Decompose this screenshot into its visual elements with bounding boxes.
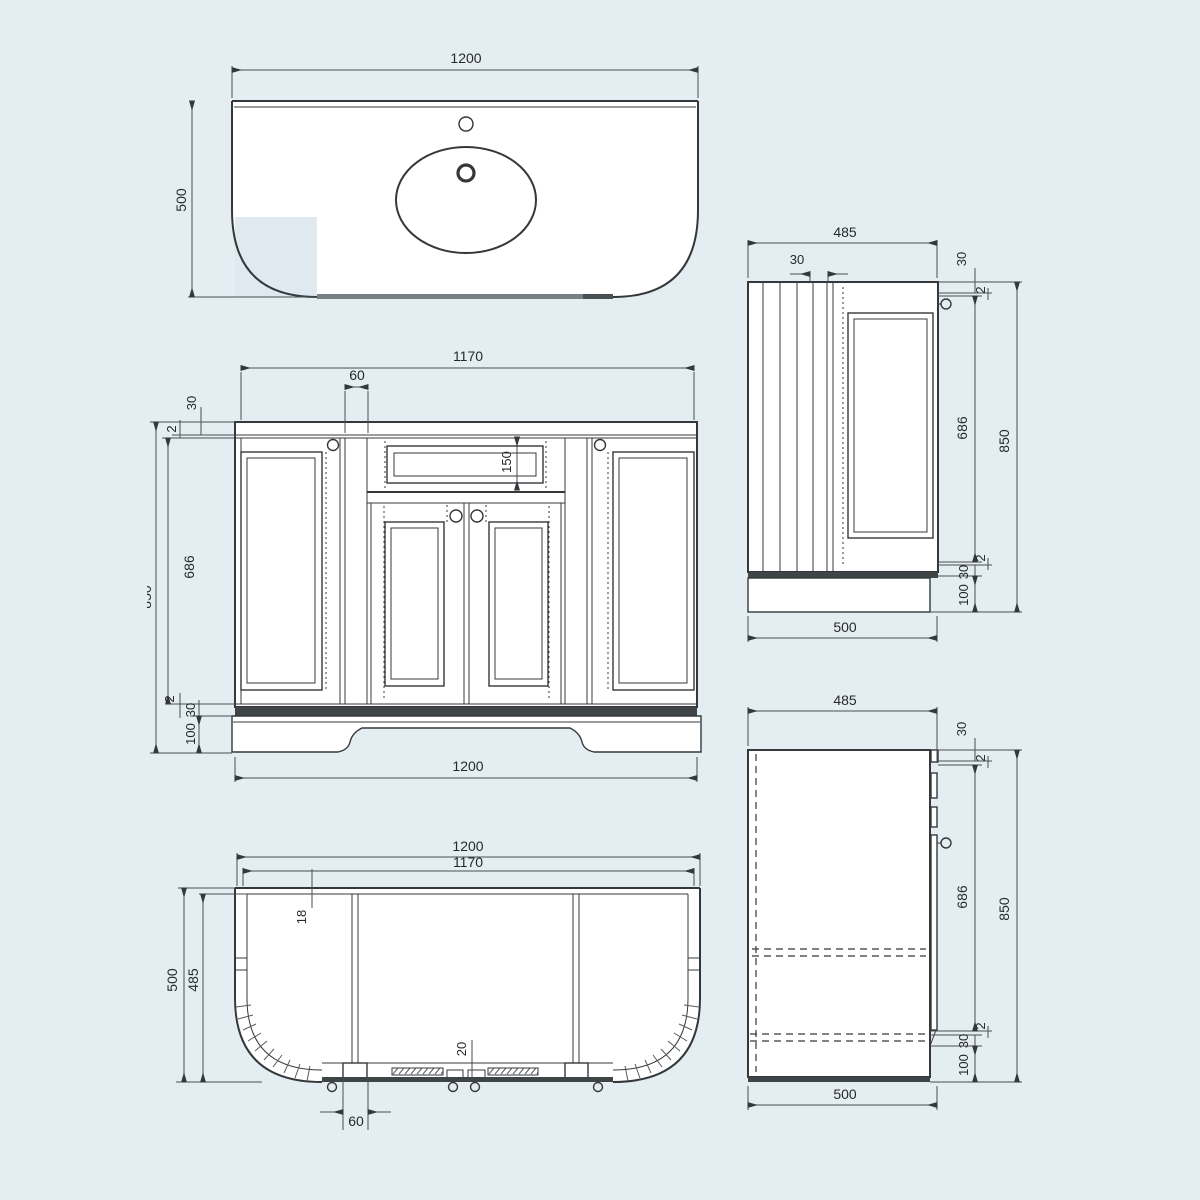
dim-sideu-bottom-rail: 30	[956, 565, 971, 579]
door-edge-profile	[931, 835, 937, 1030]
dim-sidel-top-gap: 2	[973, 754, 988, 761]
dim-sideu-plinth: 100	[956, 584, 971, 606]
dim-bottom-panel-thickness: 18	[294, 910, 309, 924]
dim-front-top-rail: 30	[184, 396, 199, 410]
dim-front-stile: 60	[349, 367, 365, 383]
dim-sidel-door-height: 686	[954, 885, 970, 909]
dim-bottom-depth: 500	[164, 968, 180, 992]
dim-front-overall-width: 1200	[452, 758, 483, 774]
dim-front-bottom-gap: 2	[162, 695, 177, 702]
side-plinth	[748, 578, 930, 612]
dim-bottom-divider: 60	[348, 1113, 364, 1129]
watermark-square	[235, 217, 317, 297]
dim-front-door-height: 686	[181, 555, 197, 579]
dim-sideu-overall-height: 850	[996, 429, 1012, 453]
dim-front-plinth: 100	[183, 723, 198, 745]
dim-sideu-door-height: 686	[954, 416, 970, 440]
dim-sidel-bottom-rail: 30	[956, 1034, 971, 1048]
dim-bottom-opening: 1170	[453, 854, 483, 870]
bottom-rail-band	[235, 707, 697, 716]
dim-sidel-depth: 485	[833, 692, 857, 708]
dim-front-bottom-rail: 30	[183, 703, 198, 717]
dim-sideu-bottom-gap: 2	[973, 554, 988, 561]
technical-drawing-canvas: 1200 500 150	[0, 0, 1200, 1200]
dim-plan-depth: 500	[173, 188, 189, 212]
dim-sidel-bottom-gap: 2	[973, 1022, 988, 1029]
dim-plan-width: 1200	[450, 50, 481, 66]
dim-sidel-top-rail: 30	[954, 722, 969, 736]
dim-sideu-top-rail: 30	[954, 252, 969, 266]
dim-sidel-base-depth: 500	[833, 1086, 857, 1102]
dim-bottom-front-edge: 20	[454, 1042, 469, 1056]
countertop-front-edge	[317, 294, 613, 299]
dim-front-opening-width: 1170	[453, 348, 483, 364]
dim-sidel-overall-height: 850	[996, 897, 1012, 921]
dim-sideu-base-depth: 500	[833, 619, 857, 635]
dim-front-top-gap: 2	[164, 425, 179, 432]
dim-sideu-depth: 485	[833, 224, 857, 240]
dim-bottom-carcass-depth: 485	[185, 968, 201, 992]
dim-sidel-plinth: 100	[956, 1054, 971, 1076]
dim-sideu-back-offset: 30	[790, 252, 804, 267]
dim-drawer-height: 150	[499, 451, 514, 473]
dim-sideu-top-gap: 2	[973, 286, 988, 293]
dim-bottom-width: 1200	[452, 838, 483, 854]
